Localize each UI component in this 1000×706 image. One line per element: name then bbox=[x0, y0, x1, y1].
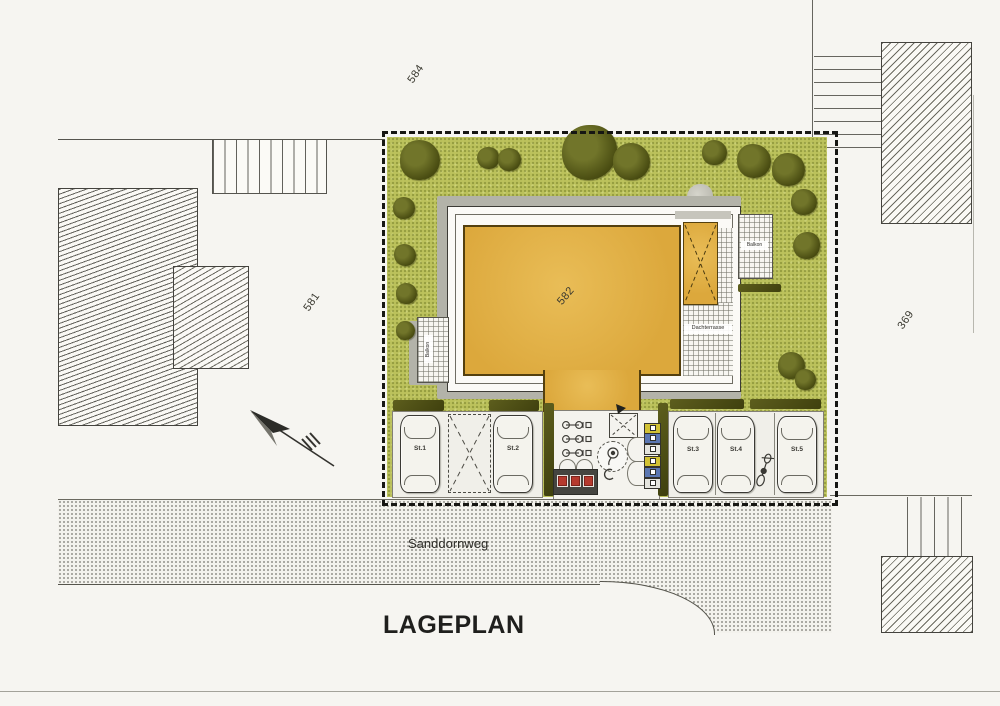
north-arrow-icon bbox=[246, 404, 338, 470]
neighbor-building-right-top bbox=[881, 42, 972, 224]
street-edge-right bbox=[830, 495, 972, 496]
neighbor-garage-left bbox=[212, 139, 327, 194]
neighbor-driveway-right-bottom bbox=[907, 497, 964, 556]
parcel-number-581: 581 bbox=[301, 290, 322, 313]
parcel-edge-line-far-right bbox=[973, 95, 974, 333]
sheet-border-bottom bbox=[0, 691, 1000, 692]
parcel-number-369: 369 bbox=[895, 308, 916, 331]
neighbor-building-left-annex bbox=[173, 266, 249, 369]
site-plan: 581 584 369 582 Dachterrasse bbox=[0, 0, 1000, 706]
page-title: LAGEPLAN bbox=[383, 611, 525, 640]
plot-boundary bbox=[382, 131, 838, 506]
street-surface bbox=[58, 499, 600, 585]
street-name: Sanddornweg bbox=[408, 536, 488, 551]
parcel-boundary-line-right bbox=[812, 0, 813, 140]
neighbor-building-right-bottom bbox=[881, 556, 973, 633]
parcel-number-584: 584 bbox=[405, 62, 426, 85]
